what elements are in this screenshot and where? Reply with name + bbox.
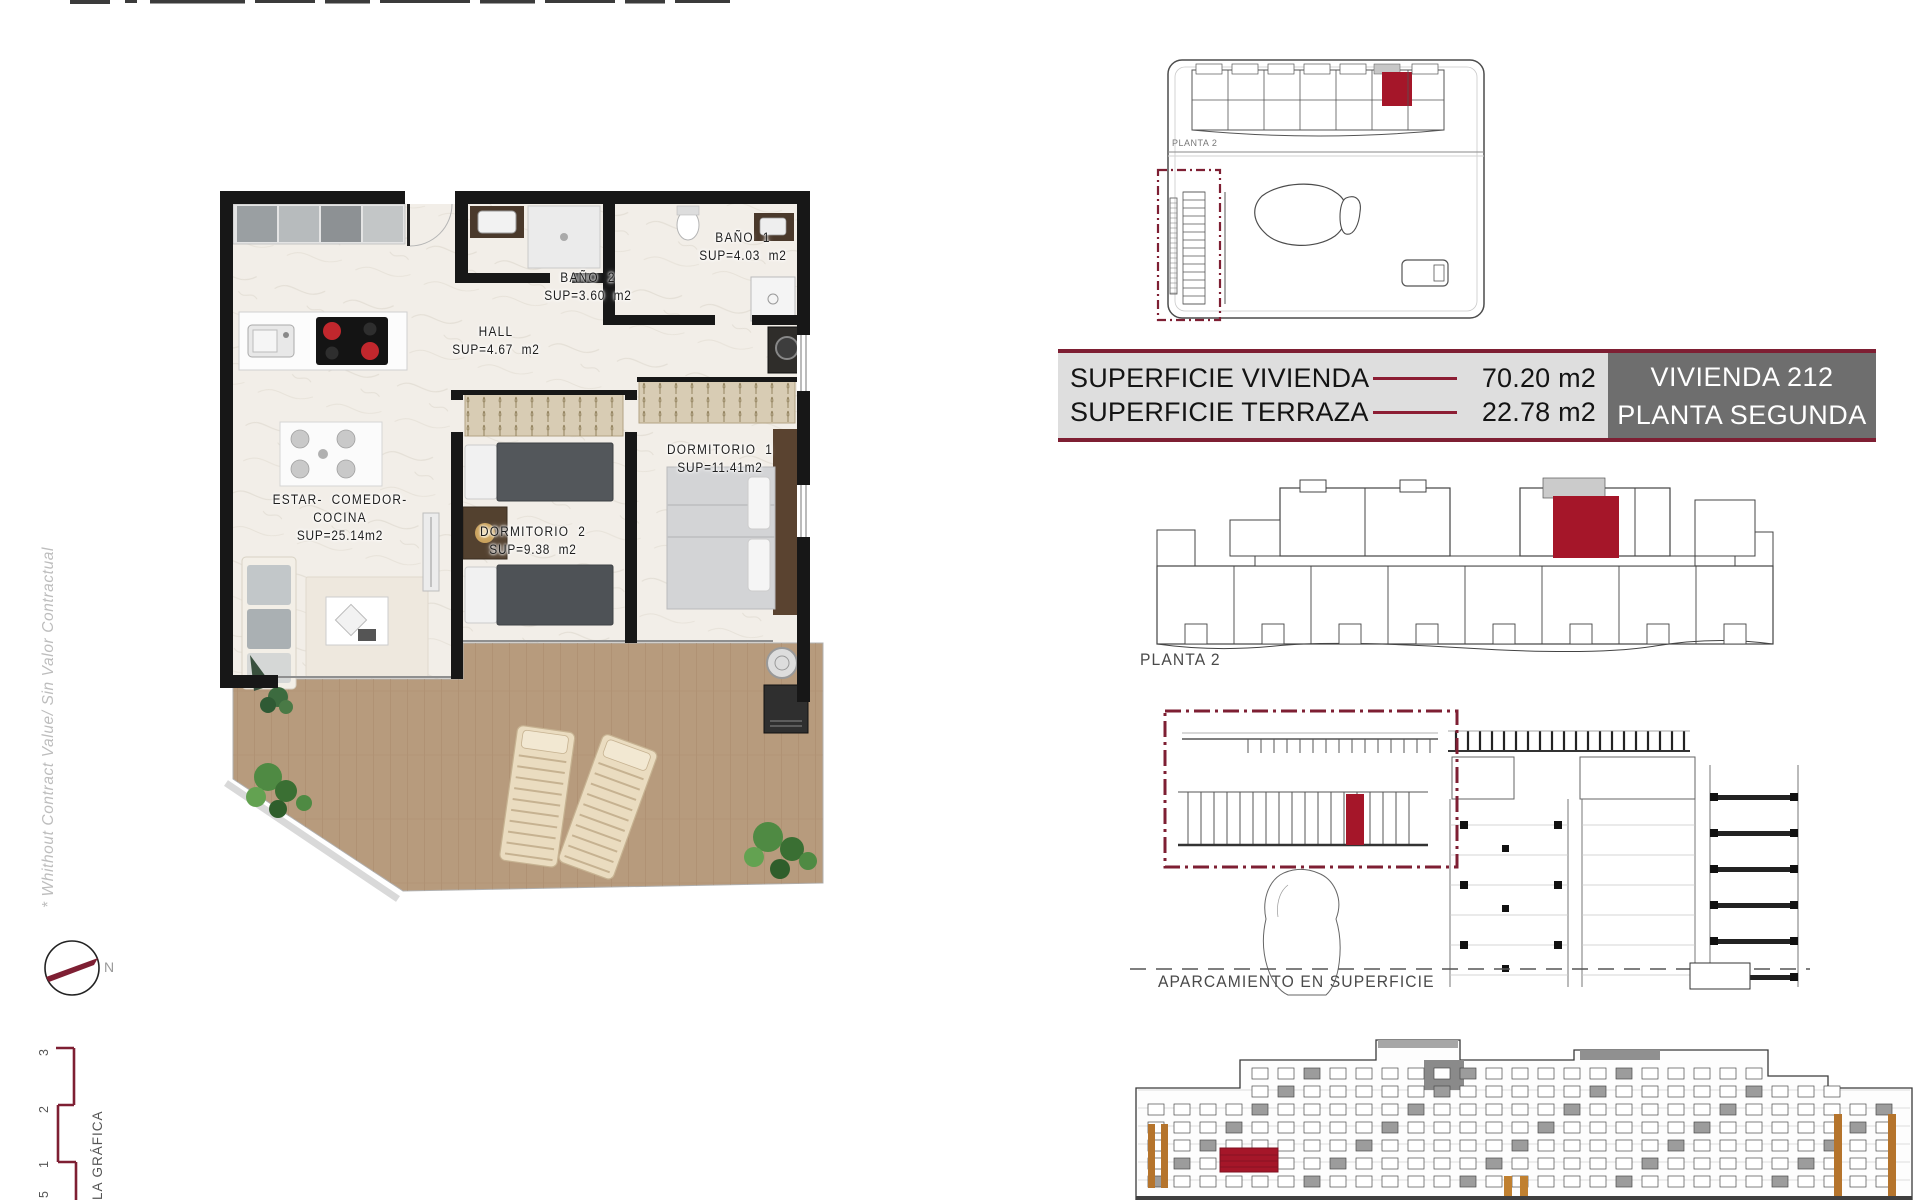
stair-detail — [1690, 963, 1750, 989]
room-name-bano2: BAÑO 2 — [518, 269, 659, 287]
disclaimer-vertical-text: * Whithout Contract Value/ Sin Valor Con… — [40, 508, 58, 908]
site-plan-floor-label: PLANTA 2 — [1172, 138, 1217, 148]
car-shape — [1402, 260, 1448, 286]
compass-icon: N — [34, 930, 124, 1008]
surface-row: SUPERFICIE TERRAZA 22.78 m2 — [1070, 397, 1596, 428]
highlighted-parking-space — [1346, 794, 1364, 845]
surface-value: 70.20 m2 — [1471, 363, 1596, 394]
room-name-bano1: BAÑO 1 — [659, 229, 826, 247]
highlighted-unit — [1220, 1148, 1278, 1172]
scale-tick-1: 1 — [37, 1161, 51, 1168]
room-label-hall: HALL SUP=4.67 m2 — [426, 323, 567, 359]
title-block: SUPERFICIE VIVIENDA 70.20 m2 SUPERFICIE … — [1058, 349, 1876, 442]
cropped-header-fragment — [70, 0, 730, 8]
building-plan-label: PLANTA 2 — [1140, 650, 1221, 670]
scale-caption: LA GRÁFICA — [90, 1110, 105, 1200]
scale-tick-2: 2 — [37, 1106, 51, 1113]
room-name-estar: ESTAR- COMEDOR-COCINA — [252, 491, 428, 527]
scale-tick-3: 3 — [37, 1049, 51, 1056]
parking-dashed-highlight — [1165, 711, 1457, 867]
title-block-surfaces: SUPERFICIE VIVIENDA 70.20 m2 SUPERFICIE … — [1058, 353, 1608, 438]
plan-sheet: ESTAR- COMEDOR-COCINA SUP=25.14m2 HALL S… — [0, 0, 1920, 1200]
highlighted-unit — [1382, 72, 1412, 106]
surface-label: SUPERFICIE TERRAZA — [1070, 397, 1369, 428]
building-elevation — [1128, 1028, 1920, 1200]
room-label-dorm2: DORMITORIO 2 SUP=9.38 m2 — [458, 523, 608, 559]
site-plan-thumbnail: PLANTA 2 — [1150, 50, 1500, 330]
room-area-hall: SUP=4.67 m2 — [426, 341, 567, 359]
parking-plan — [1130, 695, 1810, 997]
room-name-dorm1: DORMITORIO 1 — [636, 441, 803, 459]
site-plan-units — [1192, 64, 1444, 136]
room-area-bano1: SUP=4.03 m2 — [659, 247, 826, 265]
dining-table — [280, 422, 382, 486]
room-area-estar: SUP=25.14m2 — [252, 527, 428, 545]
room-area-dorm2: SUP=9.38 m2 — [458, 541, 608, 559]
room-label-estar: ESTAR- COMEDOR-COCINA SUP=25.14m2 — [252, 491, 428, 545]
compass-north-label: N — [104, 959, 114, 975]
room-area-dorm1: SUP=11.41m2 — [636, 459, 803, 477]
graphic-scale: 3 2 1 5 LA GRÁFICA — [36, 1030, 146, 1200]
apartment-floor-plan: ESTAR- COMEDOR-COCINA SUP=25.14m2 HALL S… — [220, 185, 865, 905]
room-label-dorm1: DORMITORIO 1 SUP=11.41m2 — [636, 441, 803, 477]
room-label-bano2: BAÑO 2 SUP=3.60 m2 — [518, 269, 659, 305]
room-label-bano1: BAÑO 1 SUP=4.03 m2 — [659, 229, 826, 265]
unit-number: VIVIENDA 212 — [1650, 358, 1833, 396]
unit-floor: PLANTA SEGUNDA — [1617, 396, 1867, 434]
surface-rule — [1373, 411, 1457, 414]
pool-shape — [1255, 184, 1347, 245]
surface-rule — [1373, 377, 1457, 380]
building-floor-plan — [1135, 470, 1795, 670]
room-name-hall: HALL — [426, 323, 567, 341]
surface-label: SUPERFICIE VIVIENDA — [1070, 363, 1369, 394]
highlighted-unit — [1553, 496, 1619, 558]
surface-row: SUPERFICIE VIVIENDA 70.20 m2 — [1070, 363, 1596, 394]
scale-tick-05: 5 — [37, 1191, 51, 1198]
parking-plan-label: APARCAMIENTO EN SUPERFICIE — [1158, 972, 1435, 992]
title-block-unit: VIVIENDA 212 PLANTA SEGUNDA — [1608, 353, 1876, 438]
surface-value: 22.78 m2 — [1471, 397, 1596, 428]
room-name-dorm2: DORMITORIO 2 — [458, 523, 608, 541]
room-area-bano2: SUP=3.60 m2 — [518, 287, 659, 305]
